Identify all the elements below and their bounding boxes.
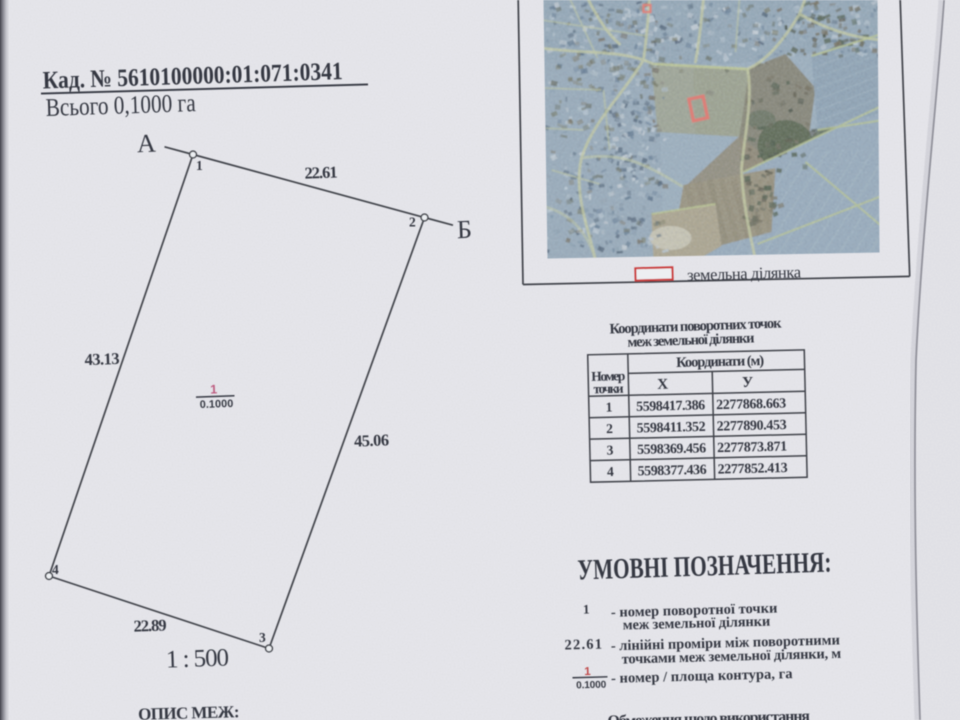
svg-text:5598377.436: 5598377.436 <box>637 463 706 480</box>
svg-text:У: У <box>742 375 753 391</box>
svg-text:ОПИС МЕЖ:: ОПИС МЕЖ: <box>138 702 240 720</box>
svg-text:3: 3 <box>606 442 613 457</box>
svg-text:Х: Х <box>657 377 668 393</box>
svg-text:1: 1 <box>584 666 591 678</box>
svg-text:1: 1 <box>196 158 203 173</box>
svg-text:22.89: 22.89 <box>133 615 167 635</box>
svg-text:2: 2 <box>409 215 416 230</box>
svg-text:2277852.413: 2277852.413 <box>717 461 787 478</box>
svg-text:0.1000: 0.1000 <box>576 680 607 692</box>
svg-text:1: 1 <box>210 382 217 396</box>
svg-text:1: 1 <box>605 399 612 414</box>
svg-text:5598411.352: 5598411.352 <box>637 420 706 437</box>
svg-text:2277890.453: 2277890.453 <box>717 418 787 435</box>
svg-text:Координати (м): Координати (м) <box>676 353 764 371</box>
svg-text:2277868.663: 2277868.663 <box>716 397 786 414</box>
svg-text:0.1000: 0.1000 <box>200 398 234 411</box>
svg-text:45.06: 45.06 <box>354 430 390 450</box>
svg-text:Б: Б <box>456 215 472 245</box>
svg-text:2: 2 <box>606 421 613 436</box>
svg-text:5598369.456: 5598369.456 <box>637 441 706 458</box>
svg-text:43.13: 43.13 <box>84 349 120 369</box>
svg-text:22.61: 22.61 <box>564 637 602 654</box>
svg-text:1 : 500: 1 : 500 <box>166 644 230 673</box>
svg-text:5598417.386: 5598417.386 <box>636 398 705 415</box>
svg-text:4: 4 <box>52 562 59 577</box>
svg-text:3: 3 <box>259 630 266 645</box>
svg-text:2277873.871: 2277873.871 <box>717 440 787 457</box>
svg-text:Всього 0,1000 га: Всього 0,1000 га <box>45 88 196 122</box>
svg-text:А: А <box>136 129 156 159</box>
svg-text:4: 4 <box>607 464 614 479</box>
svg-text:земельна ділянка: земельна ділянка <box>687 262 802 284</box>
svg-text:22.61: 22.61 <box>304 162 338 182</box>
svg-text:1: 1 <box>583 601 590 616</box>
svg-text:точки: точки <box>593 381 624 397</box>
